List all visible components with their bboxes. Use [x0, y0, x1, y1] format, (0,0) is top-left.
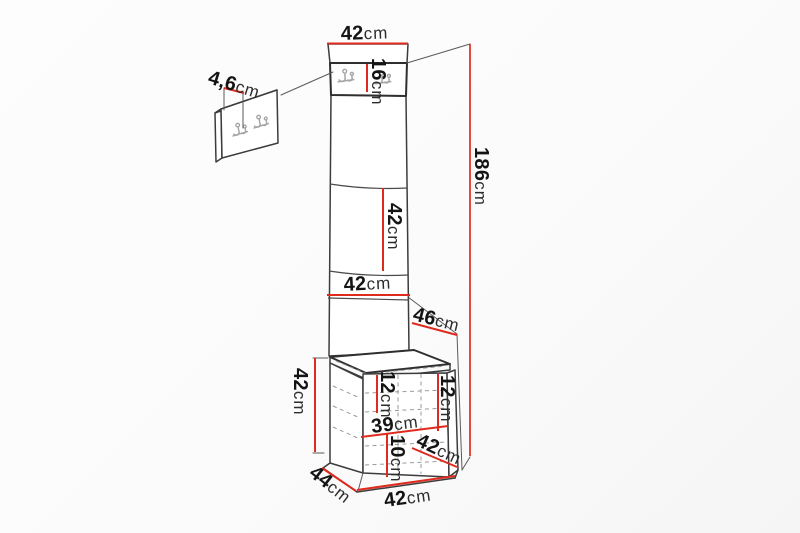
dim-label-inner-left-height: 12cm — [376, 371, 398, 419]
dim-label-panel-width: 42cm — [343, 272, 392, 296]
dim-label-plate-thickness: 4,6cm — [206, 67, 263, 104]
furniture-dimension-diagram: 42cm 16cm 42cm 42cm 186cm 46cm — [0, 0, 800, 533]
detail-callout-line — [281, 72, 333, 95]
dim-label-panel-top-width: 42cm — [340, 21, 388, 45]
dim-label-inner-right-height: 12cm — [436, 375, 458, 423]
dim-label-total-height: 186cm — [470, 147, 492, 206]
dim-label-bench-height: 42cm — [289, 368, 311, 416]
dim-label-seat-depth: 46cm — [411, 304, 462, 337]
dim-label-hook-panel-height: 16cm — [367, 58, 389, 106]
plate-front-face — [221, 90, 278, 158]
bench-left-side — [330, 363, 363, 473]
dim-label-plinth-height: 10cm — [386, 435, 408, 483]
bench-back-post — [462, 457, 470, 470]
dim-extension-line — [407, 44, 470, 63]
dim-label-panel-section-height: 42cm — [383, 203, 405, 251]
